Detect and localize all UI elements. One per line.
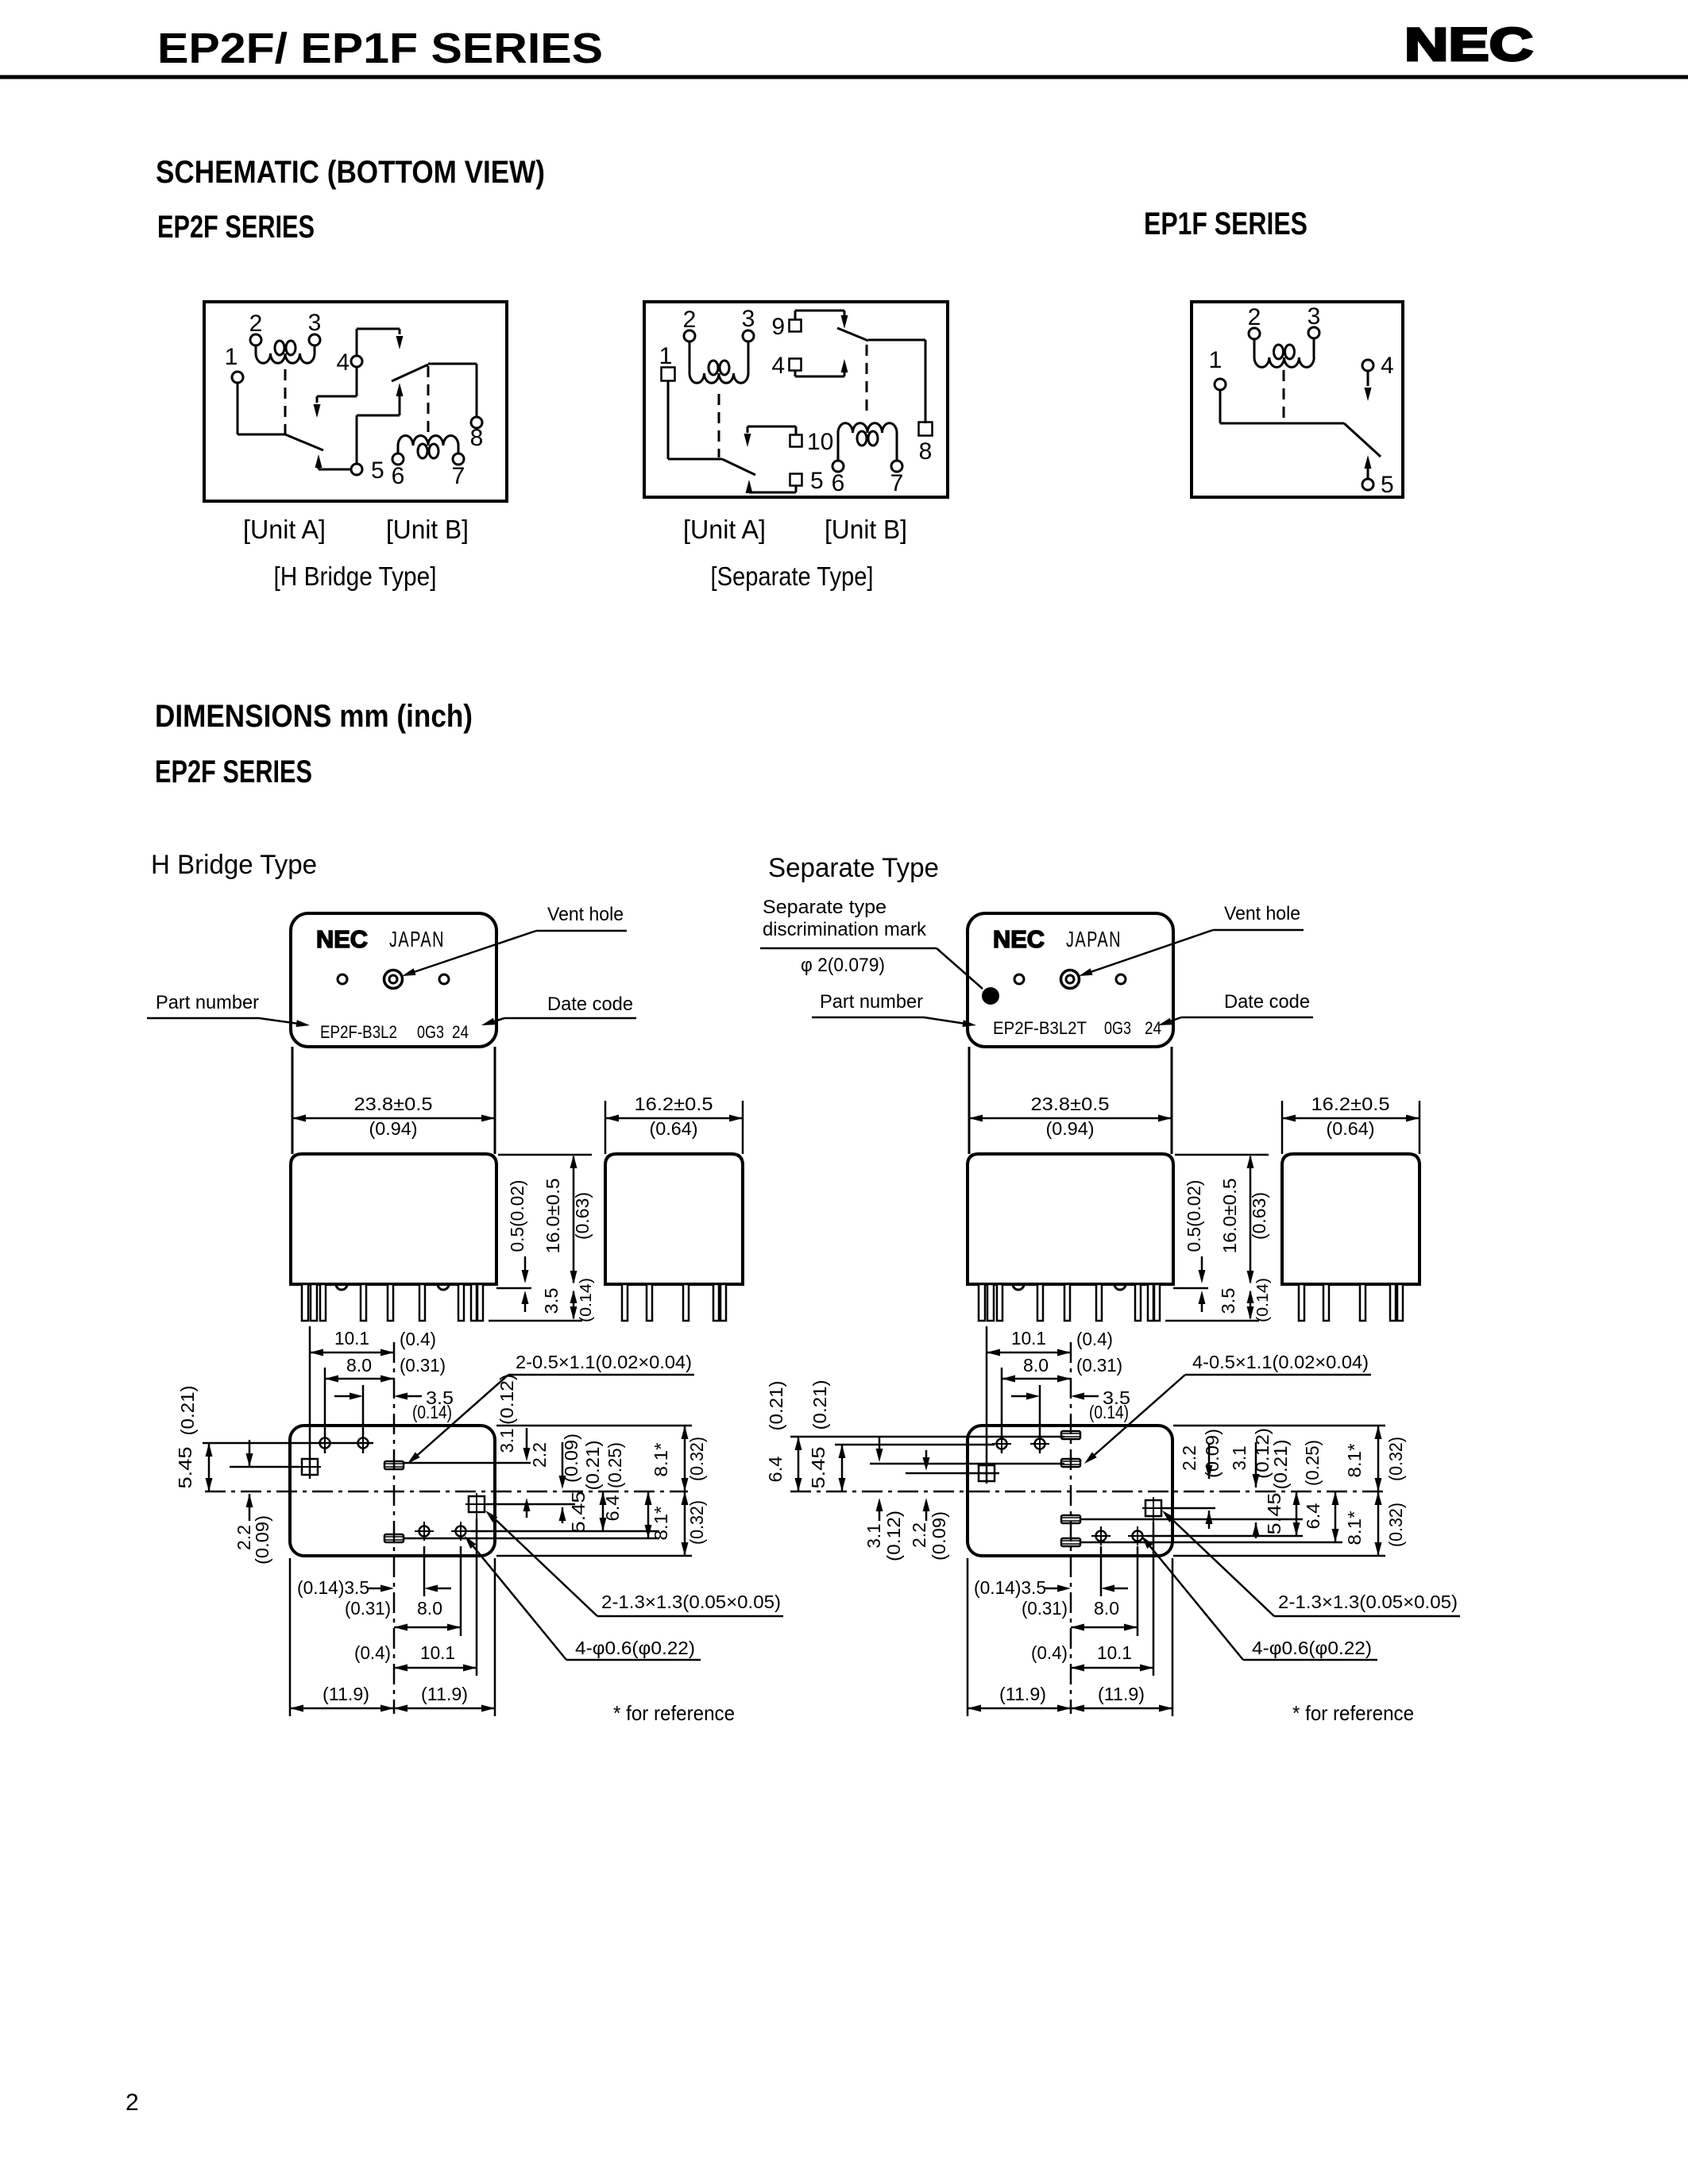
svg-text:8.1*: 8.1* xyxy=(1344,1443,1365,1477)
svg-text:(0.32): (0.32) xyxy=(1385,1503,1406,1547)
svg-text:[Separate Type]: [Separate Type] xyxy=(711,561,874,591)
svg-text:16.2±0.5: 16.2±0.5 xyxy=(635,1094,713,1114)
svg-text:16.0±0.5: 16.0±0.5 xyxy=(543,1179,563,1254)
svg-text:(0.14): (0.14) xyxy=(1089,1402,1129,1422)
svg-text:NEC: NEC xyxy=(1404,19,1533,71)
svg-text:7: 7 xyxy=(890,470,904,496)
svg-text:EP2F SERIES: EP2F SERIES xyxy=(157,210,315,245)
svg-text:0.5(0.02): 0.5(0.02) xyxy=(1184,1180,1204,1252)
svg-text:EP2F-B3L2: EP2F-B3L2 xyxy=(320,1022,397,1042)
svg-text:4: 4 xyxy=(336,349,350,376)
svg-text:(0.94): (0.94) xyxy=(1046,1118,1095,1139)
svg-text:8.1*: 8.1* xyxy=(1344,1511,1365,1545)
svg-text:(0.14)3.5: (0.14)3.5 xyxy=(974,1577,1046,1598)
svg-text:3.1: 3.1 xyxy=(1229,1446,1250,1471)
svg-text:7: 7 xyxy=(452,463,465,489)
svg-text:4-φ0.6(φ0.22): 4-φ0.6(φ0.22) xyxy=(1252,1638,1372,1658)
svg-text:(0.21): (0.21) xyxy=(809,1380,830,1430)
svg-text:(0.64): (0.64) xyxy=(650,1118,698,1139)
svg-text:JAPAN: JAPAN xyxy=(1066,927,1122,951)
svg-text:6: 6 xyxy=(392,463,405,489)
svg-text:6.4: 6.4 xyxy=(1303,1503,1323,1529)
svg-text:2.2: 2.2 xyxy=(529,1442,550,1468)
svg-text:NEC: NEC xyxy=(316,925,368,953)
svg-text:(0.14): (0.14) xyxy=(1254,1278,1272,1322)
svg-text:Separate Type: Separate Type xyxy=(768,853,939,883)
svg-text:1: 1 xyxy=(659,343,673,369)
svg-text:(0.21): (0.21) xyxy=(177,1386,198,1436)
svg-text:8.0: 8.0 xyxy=(417,1598,442,1619)
svg-text:5: 5 xyxy=(371,457,384,484)
svg-text:4-0.5×1.1(0.02×0.04): 4-0.5×1.1(0.02×0.04) xyxy=(1192,1352,1369,1372)
svg-text:2-0.5×1.1(0.02×0.04): 2-0.5×1.1(0.02×0.04) xyxy=(516,1352,692,1372)
svg-text:(0.32): (0.32) xyxy=(686,1437,707,1481)
svg-text:0G3: 0G3 xyxy=(417,1022,444,1042)
svg-text:6.4: 6.4 xyxy=(765,1456,786,1482)
svg-text:2: 2 xyxy=(126,2089,139,2116)
svg-text:16.2±0.5: 16.2±0.5 xyxy=(1311,1094,1390,1114)
svg-text:2-1.3×1.3(0.05×0.05): 2-1.3×1.3(0.05×0.05) xyxy=(1278,1592,1458,1612)
svg-text:8.1*: 8.1* xyxy=(651,1442,671,1476)
svg-text:6.4: 6.4 xyxy=(602,1495,623,1521)
svg-text:2: 2 xyxy=(683,307,697,333)
svg-text:(0.09): (0.09) xyxy=(252,1515,272,1565)
svg-text:8.0: 8.0 xyxy=(1094,1598,1119,1619)
svg-text:8.0: 8.0 xyxy=(1023,1355,1049,1376)
svg-text:3: 3 xyxy=(742,306,755,332)
svg-text:(0.32): (0.32) xyxy=(686,1500,707,1545)
svg-text:H Bridge Type: H Bridge Type xyxy=(151,850,317,880)
svg-text:(0.31): (0.31) xyxy=(400,1355,446,1376)
svg-text:10.1: 10.1 xyxy=(334,1328,369,1349)
svg-text:(0.63): (0.63) xyxy=(572,1192,593,1240)
svg-text:23.8±0.5: 23.8±0.5 xyxy=(354,1094,433,1114)
svg-text:(0.63): (0.63) xyxy=(1249,1192,1269,1240)
svg-text:6: 6 xyxy=(832,470,845,496)
svg-text:EP2F-B3L2T: EP2F-B3L2T xyxy=(993,1018,1087,1038)
svg-text:* for reference: * for reference xyxy=(1292,1701,1414,1725)
svg-text:2.2: 2.2 xyxy=(1179,1445,1199,1471)
svg-text:Part number: Part number xyxy=(156,992,259,1013)
svg-text:24: 24 xyxy=(1145,1018,1161,1038)
svg-text:(0.31): (0.31) xyxy=(345,1598,391,1619)
svg-text:[Unit A]: [Unit A] xyxy=(243,515,326,544)
svg-text:1: 1 xyxy=(1209,347,1223,373)
svg-text:JAPAN: JAPAN xyxy=(389,927,445,951)
svg-text:(0.32): (0.32) xyxy=(1385,1437,1406,1481)
svg-text:8.0: 8.0 xyxy=(346,1355,372,1376)
svg-text:(0.12): (0.12) xyxy=(496,1374,517,1425)
svg-text:EP2F/ EP1F SERIES: EP2F/ EP1F SERIES xyxy=(157,25,603,72)
svg-text:8: 8 xyxy=(470,425,484,451)
svg-text:[Unit A]: [Unit A] xyxy=(683,515,766,544)
svg-text:3.5: 3.5 xyxy=(1218,1288,1238,1314)
svg-text:9: 9 xyxy=(771,314,785,340)
svg-text:(11.9): (11.9) xyxy=(323,1684,369,1704)
svg-text:Separate type: Separate type xyxy=(763,897,886,918)
svg-text:EP2F SERIES: EP2F SERIES xyxy=(155,754,312,789)
svg-text:(11.9): (11.9) xyxy=(999,1684,1046,1704)
svg-text:3: 3 xyxy=(1308,303,1321,330)
svg-text:8.1*: 8.1* xyxy=(651,1506,671,1540)
svg-text:(0.14): (0.14) xyxy=(412,1402,452,1422)
svg-text:(0.09): (0.09) xyxy=(929,1511,949,1561)
svg-text:(11.9): (11.9) xyxy=(1098,1684,1145,1704)
svg-text:10.1: 10.1 xyxy=(1011,1328,1046,1349)
svg-text:2.2: 2.2 xyxy=(909,1522,929,1548)
svg-text:(0.4): (0.4) xyxy=(1031,1642,1068,1663)
svg-text:5.45: 5.45 xyxy=(808,1447,829,1489)
svg-text:2: 2 xyxy=(1248,304,1261,330)
svg-text:[Unit B]: [Unit B] xyxy=(825,515,907,544)
svg-text:5: 5 xyxy=(1381,472,1394,498)
svg-text:SCHEMATIC (BOTTOM VIEW): SCHEMATIC (BOTTOM VIEW) xyxy=(156,155,545,190)
svg-text:(11.9): (11.9) xyxy=(421,1684,468,1704)
svg-text:(0.25): (0.25) xyxy=(605,1442,625,1488)
svg-text:5: 5 xyxy=(810,468,824,494)
svg-text:(0.4): (0.4) xyxy=(1076,1329,1113,1349)
svg-text:5.45: 5.45 xyxy=(568,1491,589,1534)
svg-text:5.45: 5.45 xyxy=(175,1447,195,1489)
svg-text:DIMENSIONS mm (inch): DIMENSIONS mm (inch) xyxy=(155,699,473,734)
svg-text:Vent hole: Vent hole xyxy=(1224,903,1300,924)
svg-text:(0.21): (0.21) xyxy=(766,1381,786,1431)
svg-text:(0.21): (0.21) xyxy=(582,1441,603,1491)
svg-text:24: 24 xyxy=(452,1022,469,1042)
svg-text:[H Bridge Type]: [H Bridge Type] xyxy=(274,561,437,591)
svg-text:1: 1 xyxy=(225,344,238,370)
svg-text:* for reference: * for reference xyxy=(613,1701,735,1725)
svg-text:5.45: 5.45 xyxy=(1264,1493,1284,1535)
svg-text:NEC: NEC xyxy=(993,925,1045,953)
svg-text:10.1: 10.1 xyxy=(1097,1642,1132,1663)
svg-text:(0.25): (0.25) xyxy=(1302,1440,1323,1486)
svg-text:discrimination mark: discrimination mark xyxy=(763,919,927,940)
svg-text:4: 4 xyxy=(771,353,785,379)
svg-text:(0.21): (0.21) xyxy=(1270,1440,1291,1490)
svg-text:(0.14)3.5: (0.14)3.5 xyxy=(297,1577,369,1598)
svg-text:Vent hole: Vent hole xyxy=(547,904,624,925)
svg-text:[Unit B]: [Unit B] xyxy=(386,515,469,544)
svg-text:3.5: 3.5 xyxy=(541,1288,562,1314)
svg-text:2: 2 xyxy=(249,311,263,337)
svg-text:10.1: 10.1 xyxy=(420,1642,455,1663)
svg-text:EP1F SERIES: EP1F SERIES xyxy=(1144,206,1308,241)
svg-text:8: 8 xyxy=(919,438,933,465)
svg-text:(0.09): (0.09) xyxy=(1202,1429,1223,1478)
svg-text:(0.31): (0.31) xyxy=(1076,1355,1122,1376)
svg-text:Date code: Date code xyxy=(547,994,633,1015)
svg-text:3.1: 3.1 xyxy=(863,1524,884,1549)
svg-text:(0.12): (0.12) xyxy=(883,1511,904,1561)
svg-text:10: 10 xyxy=(807,429,833,455)
svg-text:3: 3 xyxy=(308,310,322,336)
svg-text:(0.94): (0.94) xyxy=(369,1118,418,1139)
svg-text:0G3: 0G3 xyxy=(1104,1018,1131,1038)
svg-text:(0.4): (0.4) xyxy=(354,1642,391,1663)
svg-text:(0.64): (0.64) xyxy=(1327,1118,1375,1139)
svg-text:Part number: Part number xyxy=(820,991,923,1013)
svg-text:(0.14): (0.14) xyxy=(577,1278,595,1322)
svg-text:(0.09): (0.09) xyxy=(561,1433,581,1483)
svg-text:φ 2(0.079): φ 2(0.079) xyxy=(801,955,885,976)
svg-text:4-φ0.6(φ0.22): 4-φ0.6(φ0.22) xyxy=(575,1638,695,1658)
svg-text:3.1: 3.1 xyxy=(496,1429,517,1453)
svg-text:Date code: Date code xyxy=(1224,991,1310,1013)
svg-text:23.8±0.5: 23.8±0.5 xyxy=(1031,1094,1110,1114)
svg-text:(0.31): (0.31) xyxy=(1022,1598,1068,1619)
svg-text:2-1.3×1.3(0.05×0.05): 2-1.3×1.3(0.05×0.05) xyxy=(601,1592,781,1612)
svg-text:4: 4 xyxy=(1381,353,1394,379)
svg-text:(0.4): (0.4) xyxy=(400,1329,436,1349)
svg-text:16.0±0.5: 16.0±0.5 xyxy=(1219,1179,1240,1254)
svg-text:0.5(0.02): 0.5(0.02) xyxy=(507,1180,527,1252)
